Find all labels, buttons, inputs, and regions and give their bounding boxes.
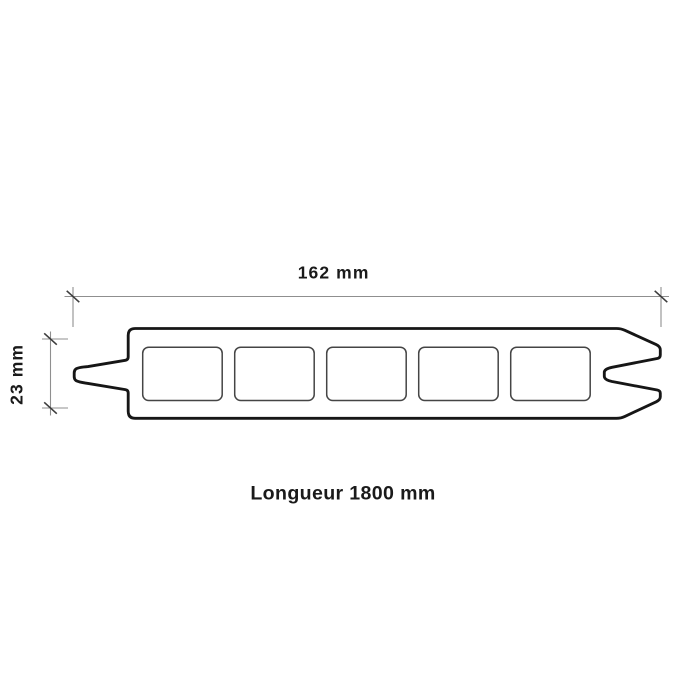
svg-text:162 mm: 162 mm [298,263,370,283]
svg-text:23 mm: 23 mm [7,344,27,405]
svg-text:Longueur 1800 mm: Longueur 1800 mm [250,483,435,505]
